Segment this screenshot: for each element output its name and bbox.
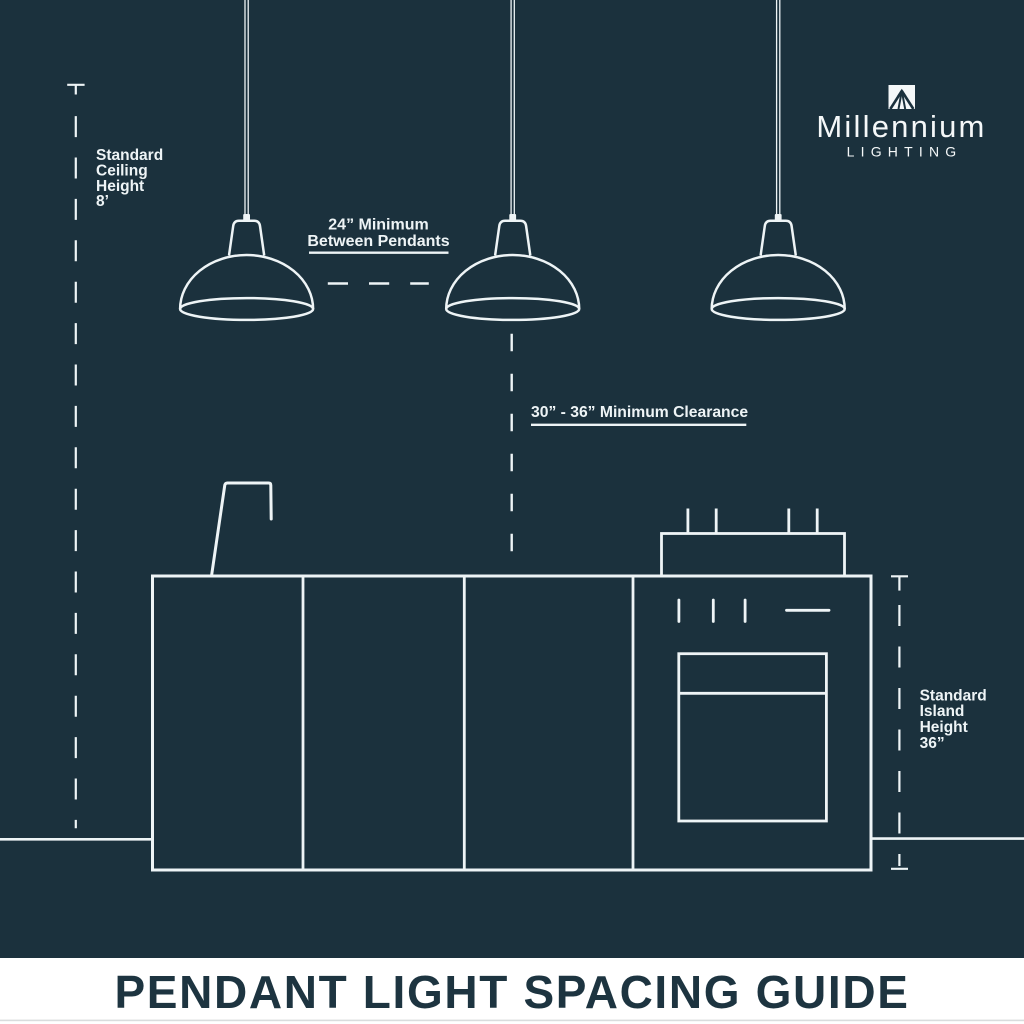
svg-text:Standard: Standard [920, 687, 987, 704]
svg-text:24” Minimum: 24” Minimum [328, 217, 428, 234]
svg-text:Between Pendants: Between Pendants [307, 233, 449, 250]
svg-text:Island: Island [920, 703, 965, 720]
svg-text:Millennium: Millennium [816, 109, 986, 144]
svg-text:Height: Height [920, 719, 968, 736]
svg-text:30” - 36” Minimum Clearance: 30” - 36” Minimum Clearance [531, 404, 748, 421]
svg-text:8’: 8’ [96, 193, 109, 210]
svg-text:36”: 36” [920, 735, 945, 752]
svg-text:LIGHTING: LIGHTING [847, 143, 963, 159]
svg-text:PENDANT LIGHT SPACING GUIDE: PENDANT LIGHT SPACING GUIDE [114, 966, 909, 1018]
